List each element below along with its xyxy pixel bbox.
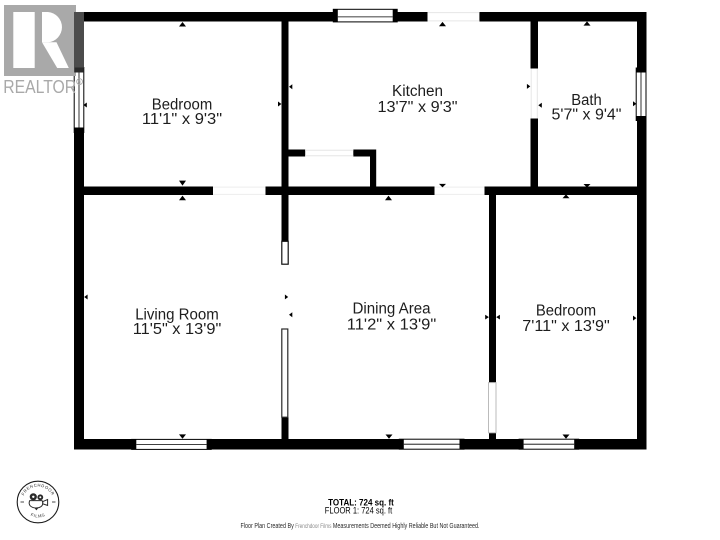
- svg-text:11'5" x 13'9": 11'5" x 13'9": [133, 321, 222, 338]
- svg-text:Bedroom: Bedroom: [536, 302, 596, 319]
- svg-text:Kitchen: Kitchen: [392, 83, 443, 100]
- svg-text:7'11" x 13'9": 7'11" x 13'9": [522, 318, 610, 335]
- svg-text:13'7" x 9'3": 13'7" x 9'3": [378, 99, 458, 116]
- svg-text:Dining Area: Dining Area: [352, 301, 431, 318]
- svg-text:FLOOR 1: 724 sq. ft: FLOOR 1: 724 sq. ft: [325, 506, 393, 517]
- svg-text:11'2" x 13'9": 11'2" x 13'9": [347, 316, 437, 333]
- svg-text:Floor Plan Created By Frenchdo: Floor Plan Created By Frenchdoor Films M…: [241, 523, 480, 530]
- svg-text:11'1" x 9'3": 11'1" x 9'3": [142, 111, 222, 128]
- svg-text:REALTOR: REALTOR: [3, 77, 76, 97]
- svg-text:5'7" x 9'4": 5'7" x 9'4": [552, 107, 622, 124]
